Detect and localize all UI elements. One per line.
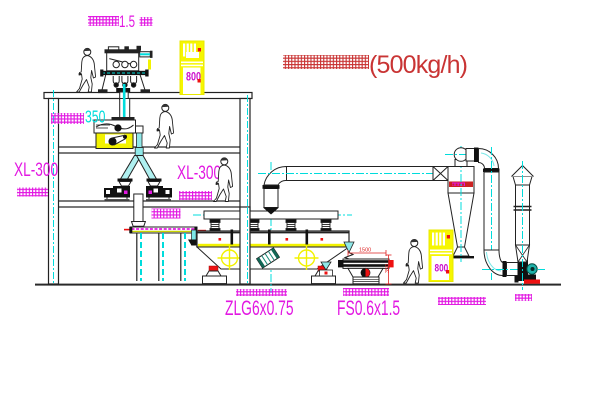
svg-text:FS0.6x1.5: FS0.6x1.5 <box>337 296 400 320</box>
svg-text:1500: 1500 <box>359 248 371 254</box>
svg-text:1.5: 1.5 <box>119 13 135 32</box>
svg-text:(500kg/h): (500kg/h) <box>369 51 468 79</box>
svg-text:XL-300: XL-300 <box>14 159 58 181</box>
svg-text:XL-300: XL-300 <box>177 162 221 184</box>
svg-text:350: 350 <box>85 107 105 127</box>
svg-text:ZLG6x0.75: ZLG6x0.75 <box>225 296 294 320</box>
svg-text:350: 350 <box>385 264 391 273</box>
